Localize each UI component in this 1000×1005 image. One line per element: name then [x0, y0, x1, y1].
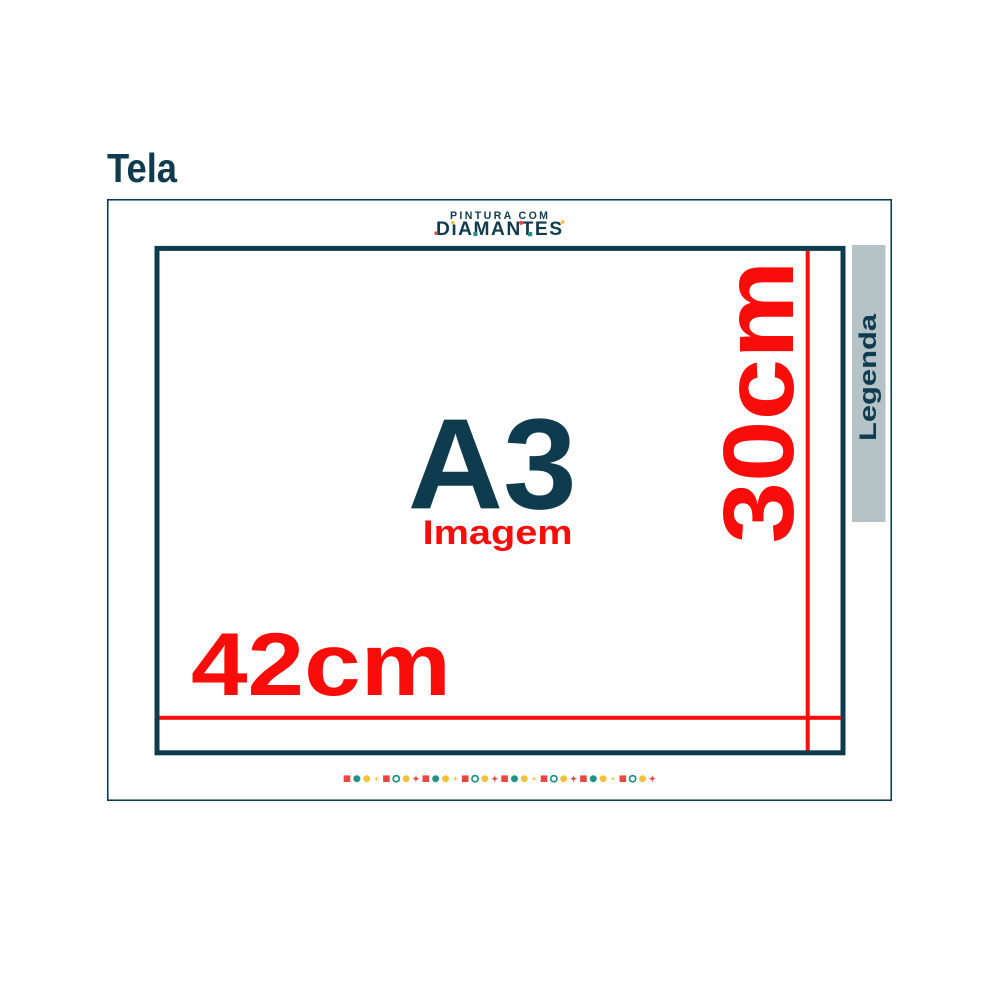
svg-text:30cm: 30cm: [703, 261, 815, 544]
svg-text:42cm: 42cm: [191, 614, 451, 714]
svg-text:Tela: Tela: [107, 145, 178, 191]
svg-text:Imagem: Imagem: [423, 514, 573, 552]
svg-text:Legenda: Legenda: [855, 313, 882, 441]
svg-text:DıAMANTES: DıAMANTES: [436, 219, 562, 240]
